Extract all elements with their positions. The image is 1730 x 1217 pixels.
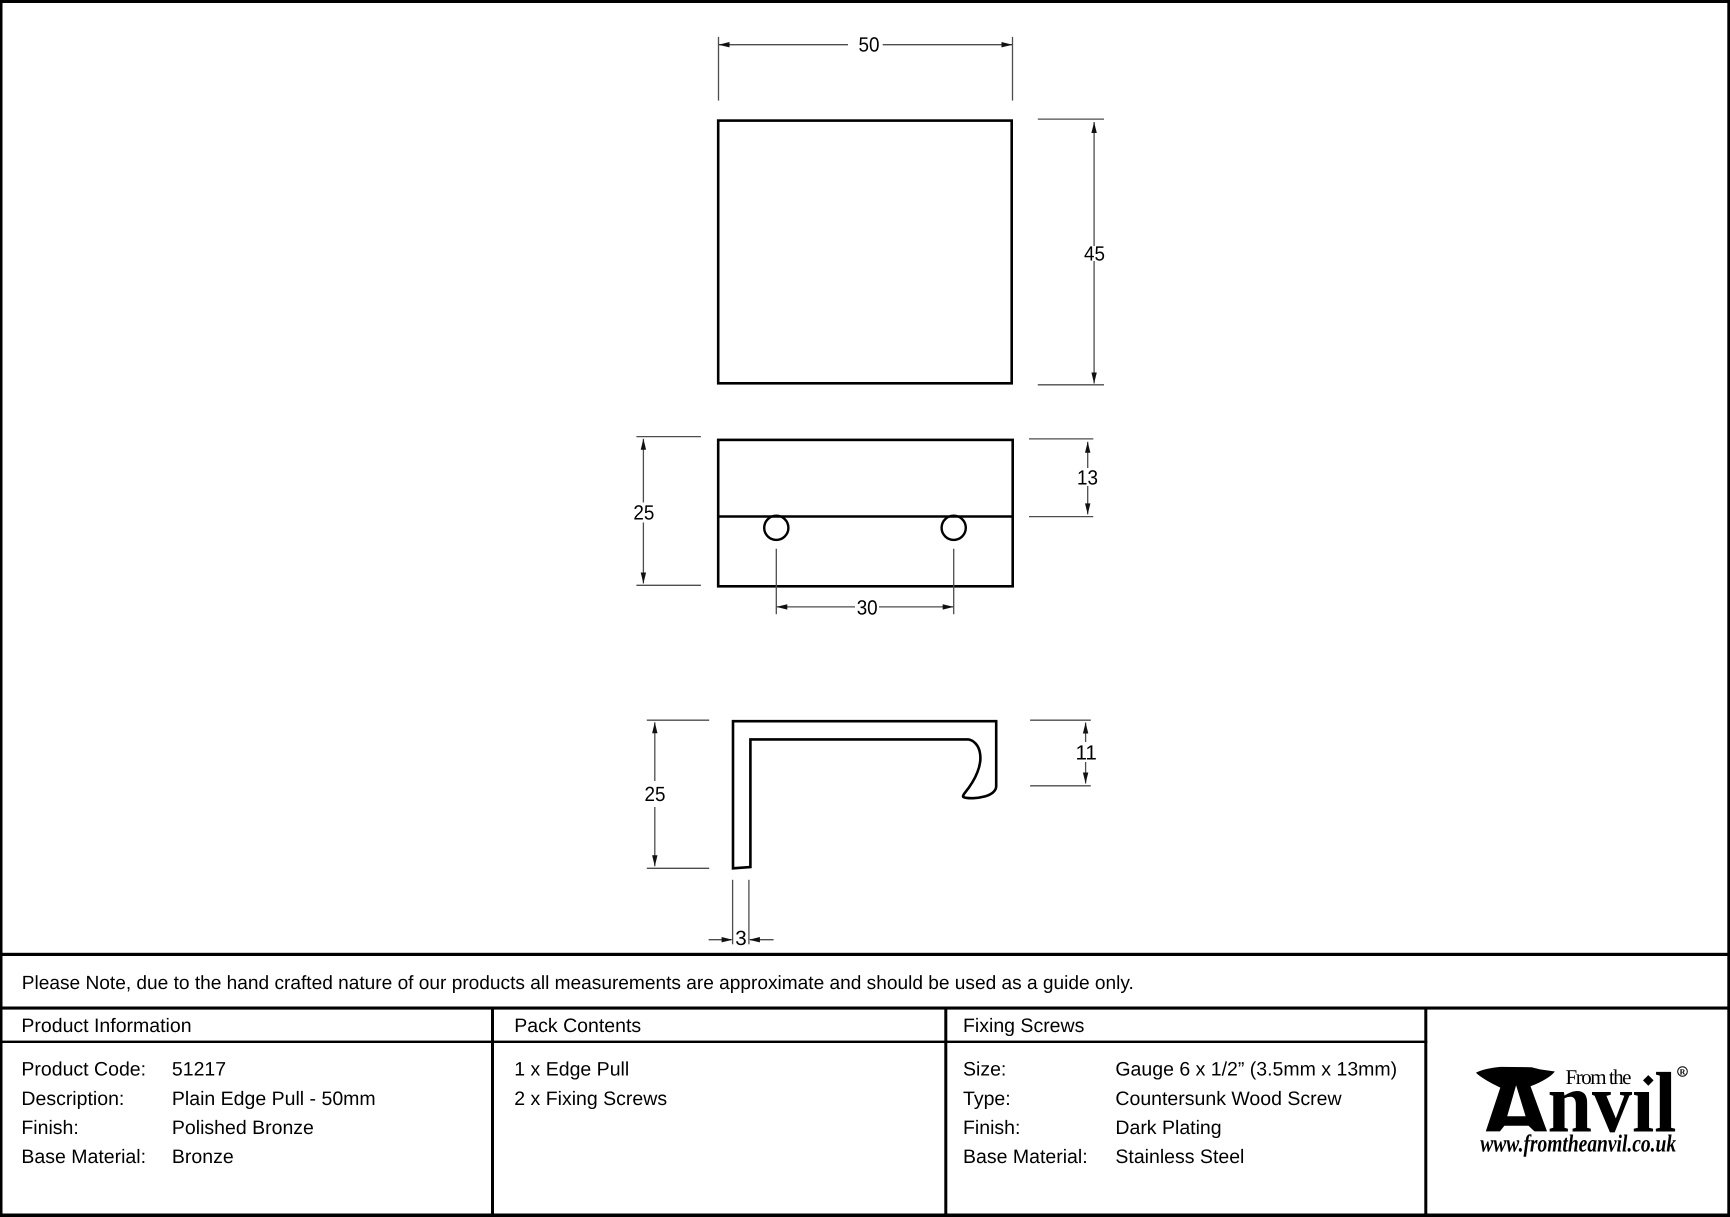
svg-text:Product Code:: Product Code:	[21, 1059, 146, 1081]
svg-text:Type:: Type:	[963, 1088, 1011, 1110]
svg-text:2 x Fixing Screws: 2 x Fixing Screws	[514, 1088, 667, 1110]
svg-text:50: 50	[859, 34, 880, 57]
svg-text:R: R	[1680, 1068, 1686, 1077]
svg-text:Fixing Screws: Fixing Screws	[963, 1015, 1085, 1037]
svg-text:11: 11	[1076, 742, 1097, 765]
svg-text:45: 45	[1084, 243, 1105, 266]
svg-text:Polished Bronze: Polished Bronze	[172, 1117, 314, 1139]
svg-text:3: 3	[735, 927, 746, 950]
svg-text:Bronze: Bronze	[172, 1146, 234, 1168]
svg-text:1 x Edge Pull: 1 x Edge Pull	[514, 1059, 629, 1081]
svg-text:Dark Plating: Dark Plating	[1115, 1117, 1221, 1139]
svg-text:51217: 51217	[172, 1059, 226, 1081]
svg-text:Base Material:: Base Material:	[963, 1146, 1088, 1168]
svg-text:25: 25	[633, 501, 654, 524]
svg-text:Stainless Steel: Stainless Steel	[1115, 1146, 1244, 1168]
svg-text:Gauge 6 x 1/2” (3.5mm x 13mm): Gauge 6 x 1/2” (3.5mm x 13mm)	[1115, 1059, 1397, 1081]
svg-text:Size:: Size:	[963, 1059, 1006, 1081]
svg-text:Base Material:: Base Material:	[21, 1146, 146, 1168]
svg-text:Description:: Description:	[21, 1088, 124, 1110]
svg-text:Finish:: Finish:	[963, 1117, 1020, 1139]
svg-text:Pack Contents: Pack Contents	[514, 1015, 641, 1037]
svg-text:Countersunk Wood Screw: Countersunk Wood Screw	[1115, 1088, 1342, 1110]
svg-text:13: 13	[1077, 466, 1098, 489]
svg-text:Product Information: Product Information	[21, 1015, 191, 1037]
svg-text:25: 25	[645, 783, 666, 806]
svg-text:www.fromtheanvil.co.uk: www.fromtheanvil.co.uk	[1480, 1131, 1676, 1158]
svg-text:Finish:: Finish:	[21, 1117, 78, 1139]
svg-text:Please Note, due to the hand c: Please Note, due to the hand crafted nat…	[22, 973, 1134, 994]
svg-text:Plain Edge Pull - 50mm: Plain Edge Pull - 50mm	[172, 1088, 376, 1110]
svg-text:30: 30	[857, 596, 878, 619]
